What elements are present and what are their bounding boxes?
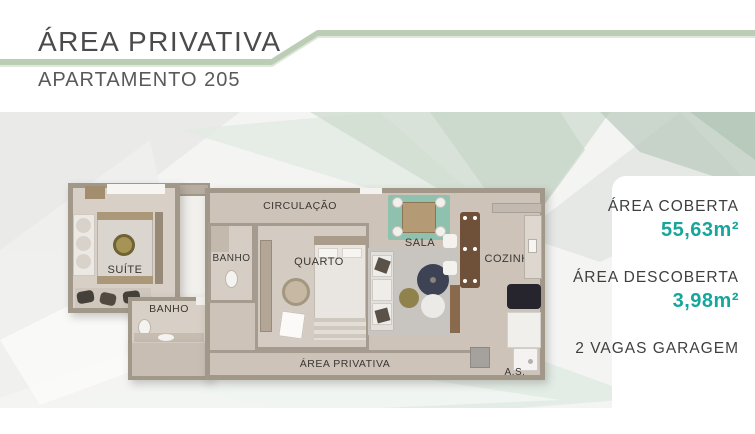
info-area-coberta: ÁREA COBERTA 55,63m² bbox=[479, 198, 739, 242]
area-coberta-value: 55,63m² bbox=[479, 219, 739, 242]
vagas-garagem-label: 2 VAGAS GARAGEM bbox=[479, 340, 739, 358]
page: { "header": { "title": "ÁREA PRIVATIVA",… bbox=[0, 0, 755, 434]
info-panel: ÁREA COBERTA 55,63m² ÁREA DESCOBERTA 3,9… bbox=[479, 198, 739, 358]
page-subtitle: APARTAMENTO 205 bbox=[38, 69, 240, 92]
area-descoberta-value: 3,98m² bbox=[479, 290, 739, 313]
info-area-descoberta: ÁREA DESCOBERTA 3,98m² bbox=[479, 269, 739, 313]
info-vagas-garagem: 2 VAGAS GARAGEM bbox=[479, 340, 739, 358]
area-coberta-label: ÁREA COBERTA bbox=[479, 198, 739, 216]
area-descoberta-label: ÁREA DESCOBERTA bbox=[479, 269, 739, 287]
page-title: ÁREA PRIVATIVA bbox=[38, 26, 282, 58]
